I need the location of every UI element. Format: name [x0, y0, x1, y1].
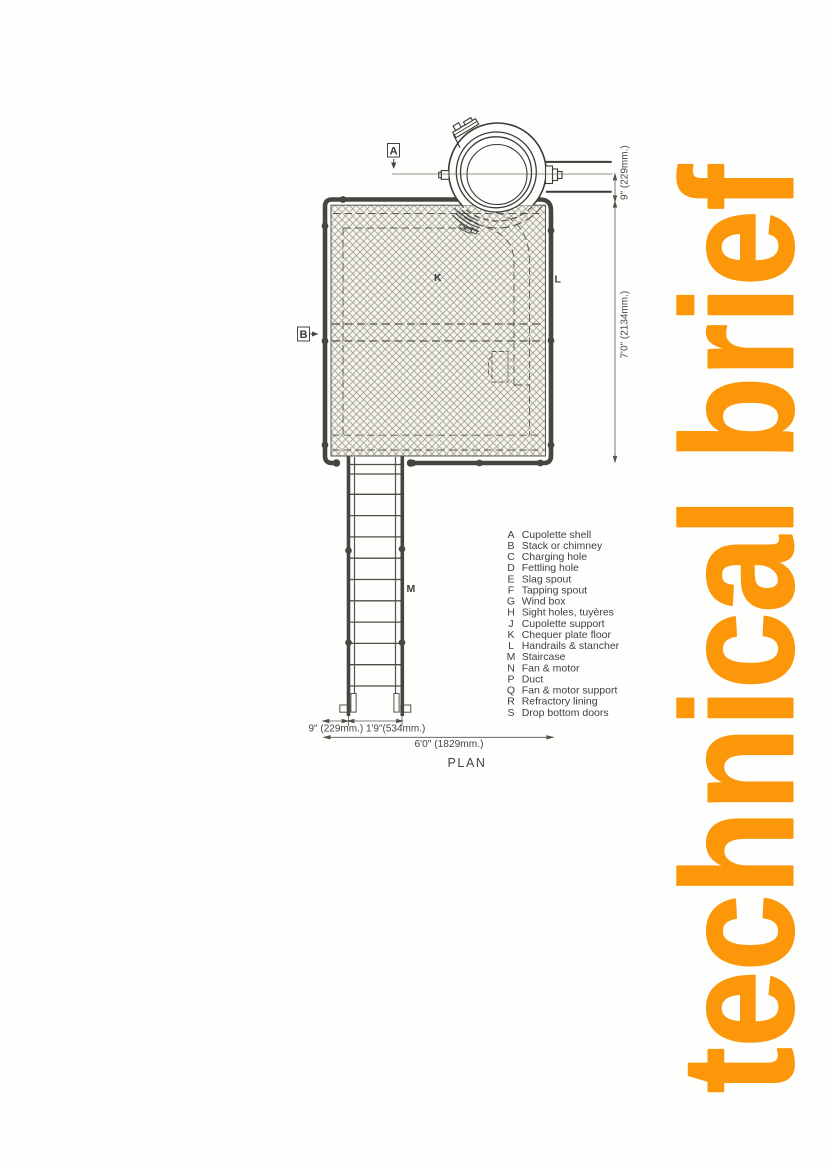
svg-text:K: K [507, 629, 514, 641]
svg-text:R: R [507, 696, 515, 708]
svg-text:M: M [407, 583, 416, 595]
svg-text:7'0" (2134mm.): 7'0" (2134mm.) [620, 291, 631, 359]
svg-text:Chequer plate floor: Chequer plate floor [522, 629, 612, 641]
svg-text:D: D [507, 562, 515, 574]
svg-text:PLAN: PLAN [448, 756, 487, 770]
svg-text:Fettling hole: Fettling hole [522, 562, 579, 574]
svg-text:9" (229mm.) 1'9"(534mm.): 9" (229mm.) 1'9"(534mm.) [309, 724, 426, 735]
svg-text:brief: brief [649, 164, 827, 460]
svg-text:S: S [507, 707, 514, 719]
svg-text:A: A [390, 145, 398, 157]
svg-text:B: B [300, 329, 308, 341]
svg-text:K: K [434, 272, 442, 284]
svg-text:technical: technical [649, 498, 827, 1093]
svg-text:6'0" (1829mm.): 6'0" (1829mm.) [415, 739, 484, 750]
svg-text:Refractory lining: Refractory lining [522, 696, 598, 708]
svg-text:Drop bottom doors: Drop bottom doors [522, 707, 609, 719]
svg-text:9" (229mm.): 9" (229mm.) [620, 145, 631, 200]
svg-text:L: L [555, 274, 562, 286]
